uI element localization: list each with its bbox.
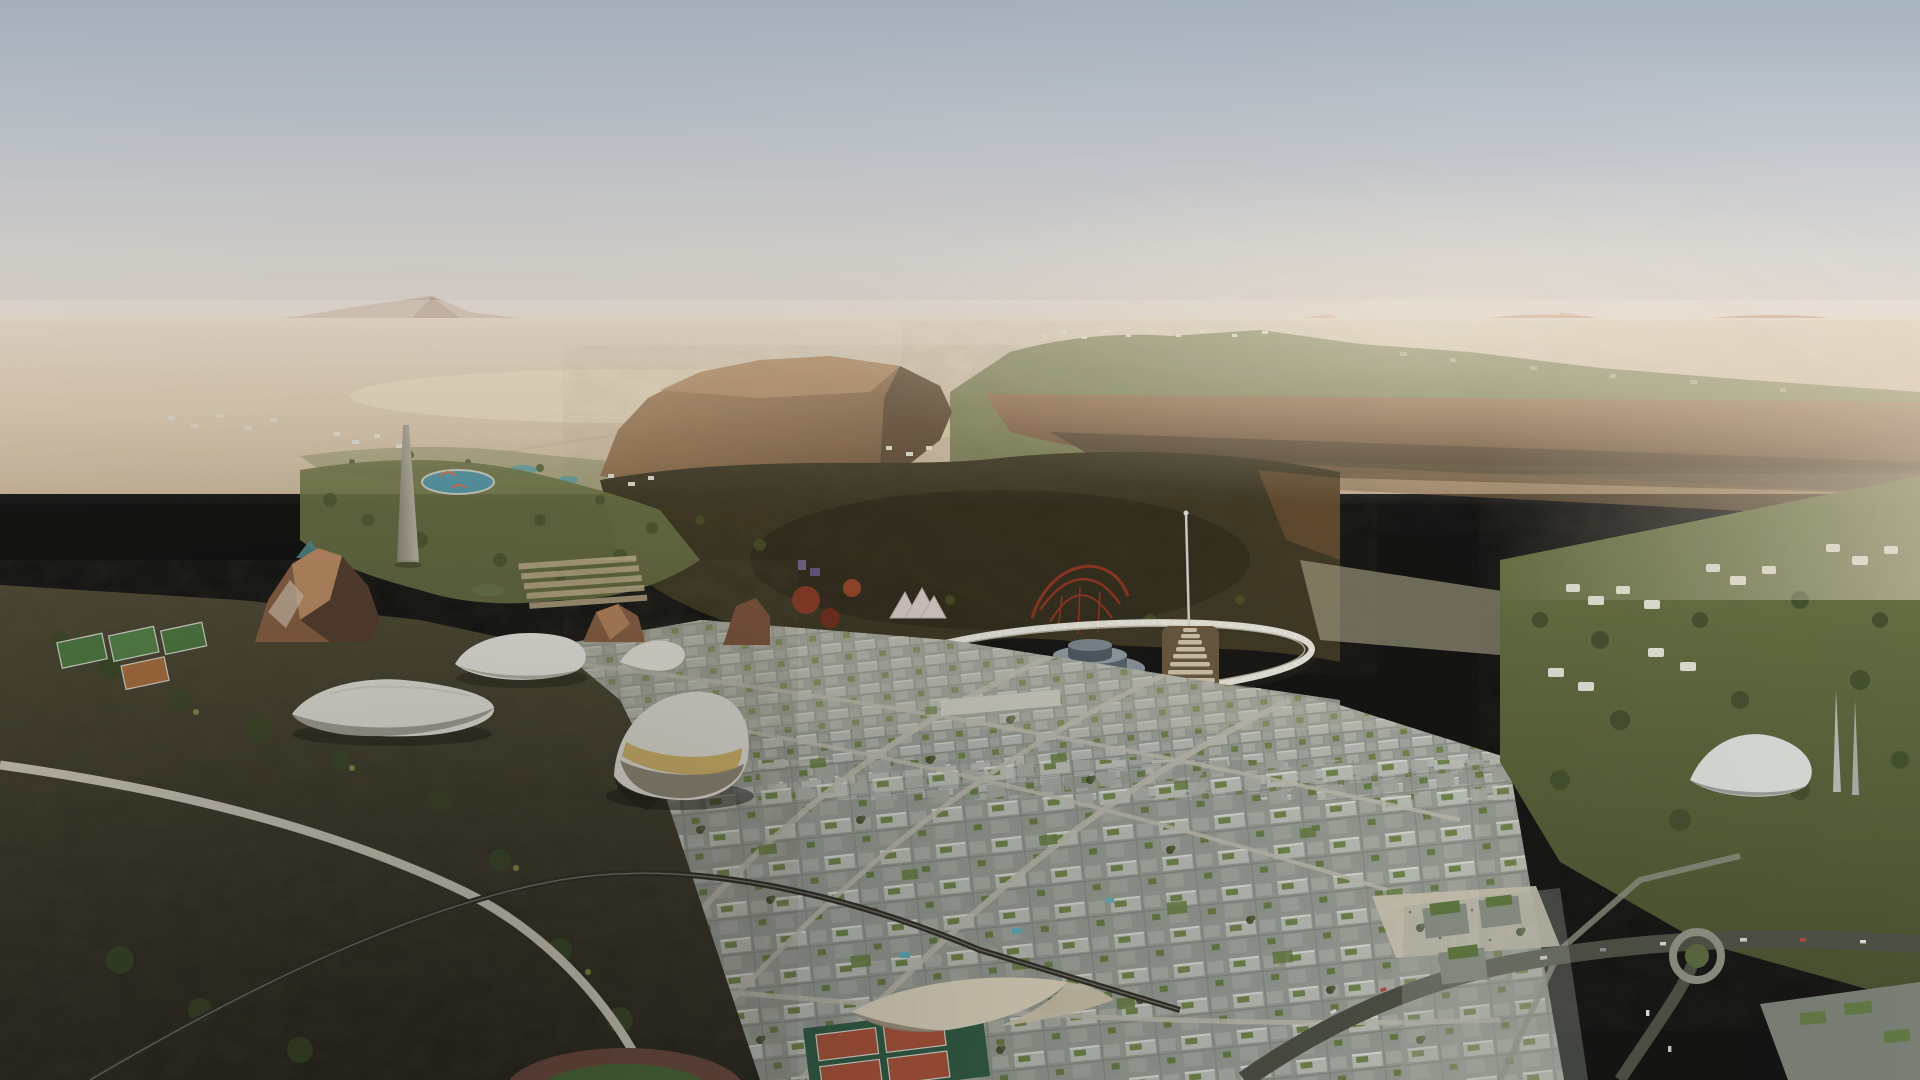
atmosphere-haze (0, 0, 1920, 1080)
render-canvas: Hazy late-afternoon aerial rendering of … (0, 0, 1920, 1080)
aerial-render-image: Hazy late-afternoon aerial rendering of … (0, 0, 1920, 1080)
